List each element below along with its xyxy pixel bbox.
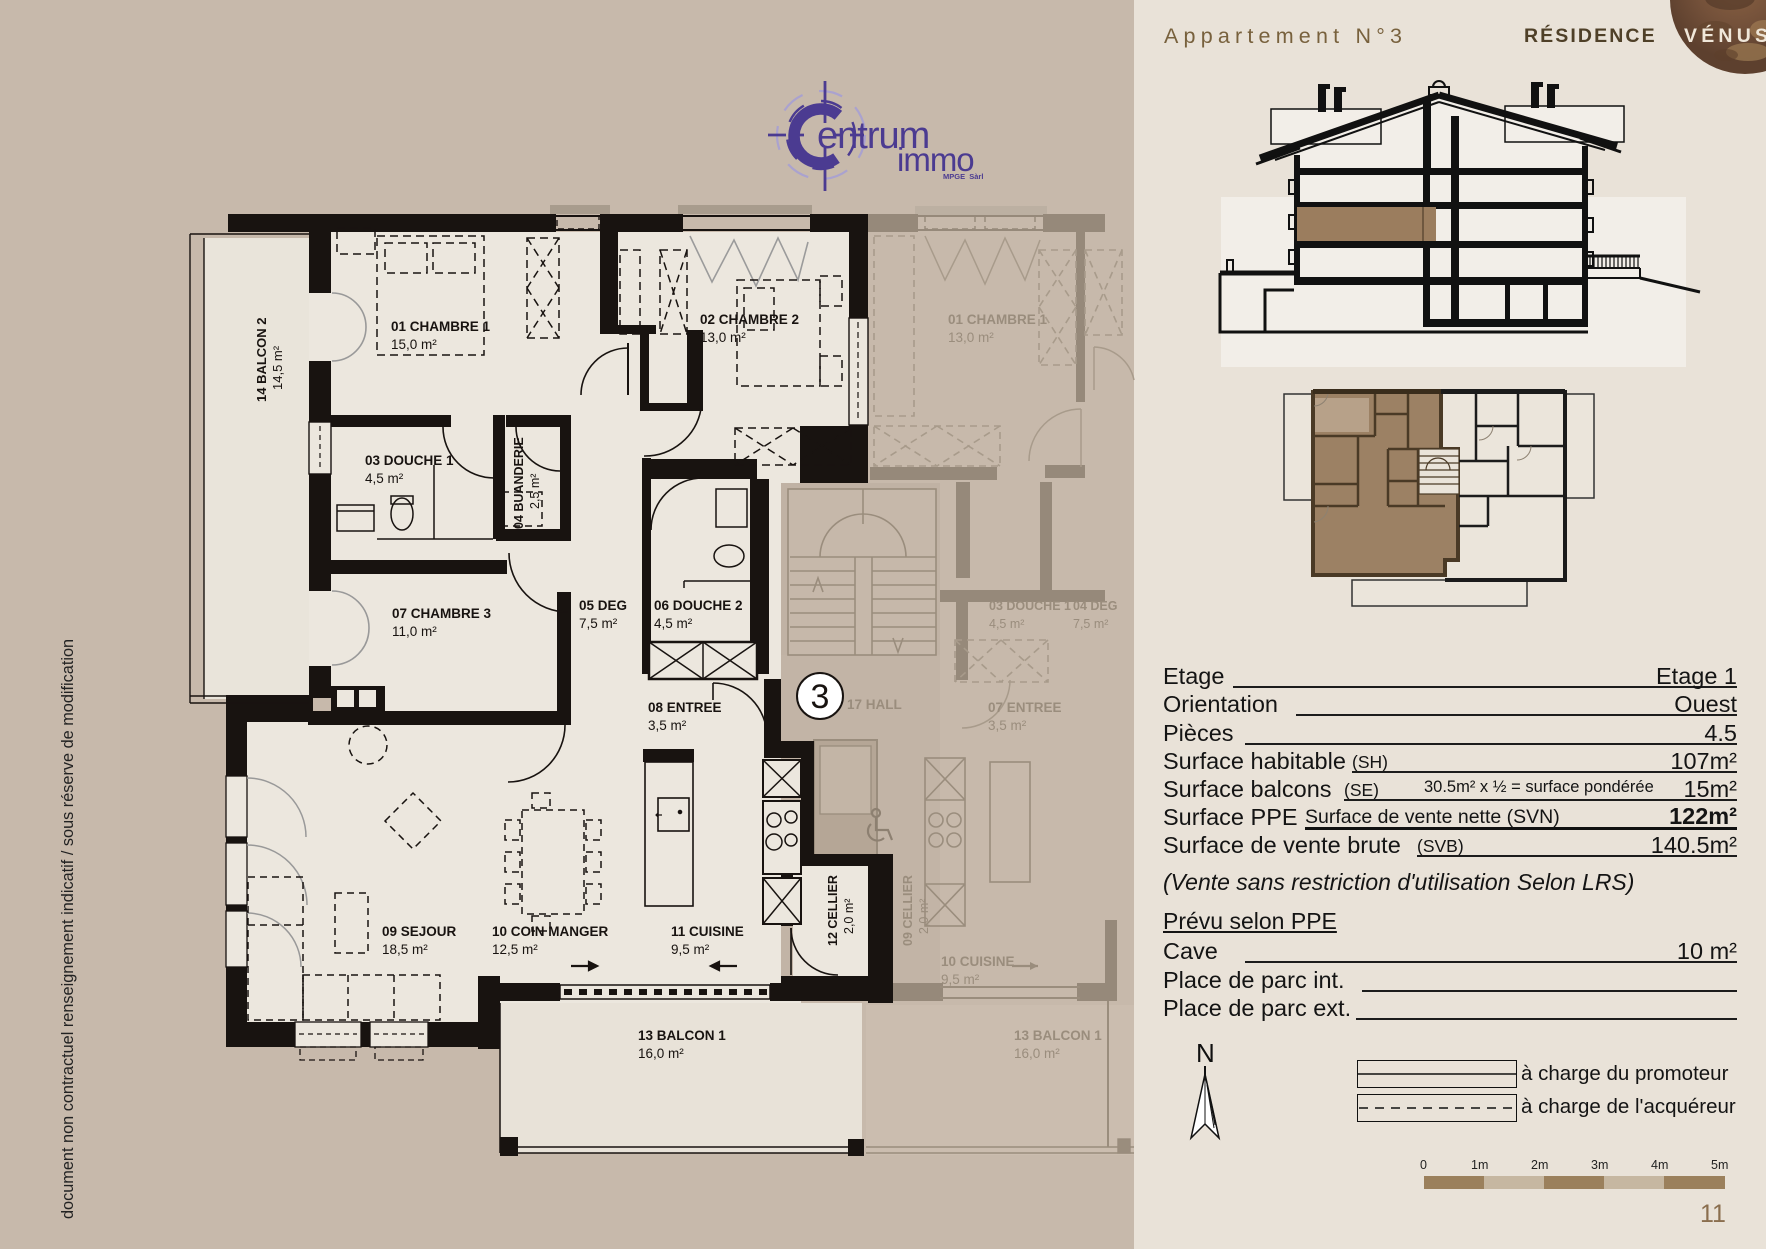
svg-text:06 DOUCHE 2: 06 DOUCHE 2: [654, 598, 743, 613]
svg-text:10 CUISINE: 10 CUISINE: [941, 954, 1015, 969]
svg-text:13,0 m²: 13,0 m²: [700, 330, 746, 345]
svg-text:12 CELLIER: 12 CELLIER: [826, 875, 840, 946]
svg-text:7,5 m²: 7,5 m²: [579, 616, 618, 631]
svg-text:03 DOUCHE 1: 03 DOUCHE 1: [365, 453, 454, 468]
svg-text:9,5 m²: 9,5 m²: [671, 942, 710, 957]
svg-text:RÉSIDENCE: RÉSIDENCE: [1524, 24, 1657, 47]
svg-text:05 DEG: 05 DEG: [579, 598, 627, 613]
svg-text:09 CELLIER: 09 CELLIER: [901, 875, 915, 946]
svg-text:03 DOUCHE 1: 03 DOUCHE 1: [989, 599, 1071, 613]
svg-text:13,0 m²: 13,0 m²: [948, 330, 994, 345]
svg-text:13 BALCON 1: 13 BALCON 1: [1014, 1028, 1102, 1043]
svg-text:VÉNUS: VÉNUS: [1684, 24, 1766, 47]
svg-text:12,5 m²: 12,5 m²: [492, 942, 538, 957]
svg-text:10 COIN MANGER: 10 COIN MANGER: [492, 924, 609, 939]
svg-text:3: 3: [811, 678, 830, 716]
svg-text:07 CHAMBRE 3: 07 CHAMBRE 3: [392, 606, 492, 621]
svg-text:18,5 m²: 18,5 m²: [382, 942, 428, 957]
svg-text:4,5 m²: 4,5 m²: [989, 617, 1024, 631]
svg-text:3,5 m²: 3,5 m²: [648, 718, 687, 733]
svg-text:2,5 m²: 2,5 m²: [528, 474, 542, 509]
svg-text:4,5 m²: 4,5 m²: [654, 616, 693, 631]
svg-text:14 BALCON 2: 14 BALCON 2: [254, 317, 269, 402]
svg-text:9,5 m²: 9,5 m²: [941, 972, 980, 987]
svg-text:07 ENTREE: 07 ENTREE: [988, 700, 1062, 715]
svg-text:11 CUISINE: 11 CUISINE: [671, 924, 744, 939]
svg-text:01 CHAMBRE 1: 01 CHAMBRE 1: [948, 312, 1048, 327]
svg-text:11,0 m²: 11,0 m²: [392, 624, 437, 639]
svg-text:16,0 m²: 16,0 m²: [638, 1046, 684, 1061]
svg-text:15,0 m²: 15,0 m²: [391, 337, 437, 352]
svg-text:01 CHAMBRE 1: 01 CHAMBRE 1: [391, 319, 491, 334]
svg-text:17 HALL: 17 HALL: [847, 697, 902, 712]
svg-text:14,5 m²: 14,5 m²: [270, 345, 285, 390]
svg-text:09 SEJOUR: 09 SEJOUR: [382, 924, 457, 939]
svg-text:2,0 m²: 2,0 m²: [917, 899, 931, 934]
svg-text:7,5 m²: 7,5 m²: [1073, 617, 1108, 631]
svg-text:04 BUANDERIE: 04 BUANDERIE: [512, 437, 526, 529]
svg-text:3,5 m²: 3,5 m²: [988, 718, 1027, 733]
svg-text:08 ENTREE: 08 ENTREE: [648, 700, 722, 715]
svg-text:N: N: [1196, 1040, 1215, 1068]
svg-text:13 BALCON 1: 13 BALCON 1: [638, 1028, 726, 1043]
svg-text:2,0 m²: 2,0 m²: [842, 899, 856, 934]
svg-text:4,5 m²: 4,5 m²: [365, 471, 404, 486]
svg-text:02 CHAMBRE 2: 02 CHAMBRE 2: [700, 312, 799, 327]
svg-text:16,0 m²: 16,0 m²: [1014, 1046, 1060, 1061]
svg-text:04 DEG: 04 DEG: [1073, 599, 1117, 613]
